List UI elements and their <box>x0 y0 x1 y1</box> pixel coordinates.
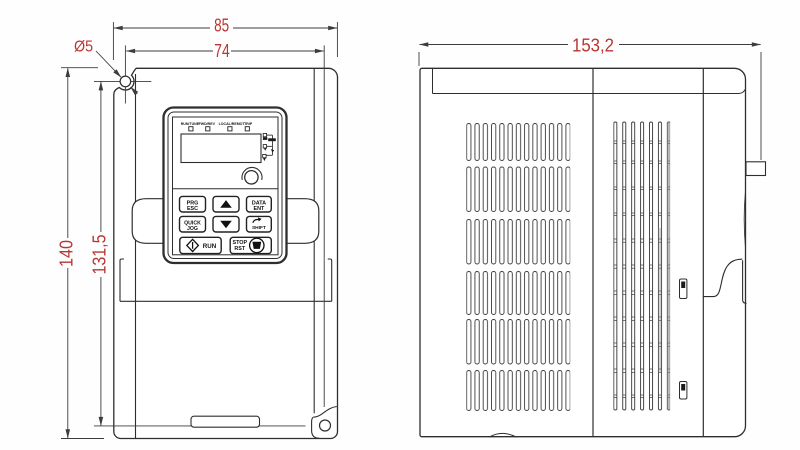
svg-text:TRIP: TRIP <box>244 122 253 126</box>
svg-text:RST: RST <box>234 246 245 252</box>
svg-text:SHIFT: SHIFT <box>252 225 266 231</box>
svg-text:JOG: JOG <box>187 226 198 232</box>
svg-text:ENT: ENT <box>254 206 265 212</box>
svg-text:RUN/TUNE: RUN/TUNE <box>181 122 200 126</box>
svg-text:74: 74 <box>214 41 230 61</box>
svg-text:RUN: RUN <box>203 243 217 250</box>
svg-text:LOCAL/REMOT: LOCAL/REMOT <box>219 122 246 126</box>
svg-text:153,2: 153,2 <box>572 36 614 56</box>
svg-text:140: 140 <box>56 240 76 267</box>
svg-text:ESC: ESC <box>187 206 198 212</box>
svg-text:131,5: 131,5 <box>89 235 109 275</box>
svg-text:Ø5: Ø5 <box>74 38 93 55</box>
svg-text:FWD/REV: FWD/REV <box>199 122 216 126</box>
svg-text:85: 85 <box>214 15 229 35</box>
